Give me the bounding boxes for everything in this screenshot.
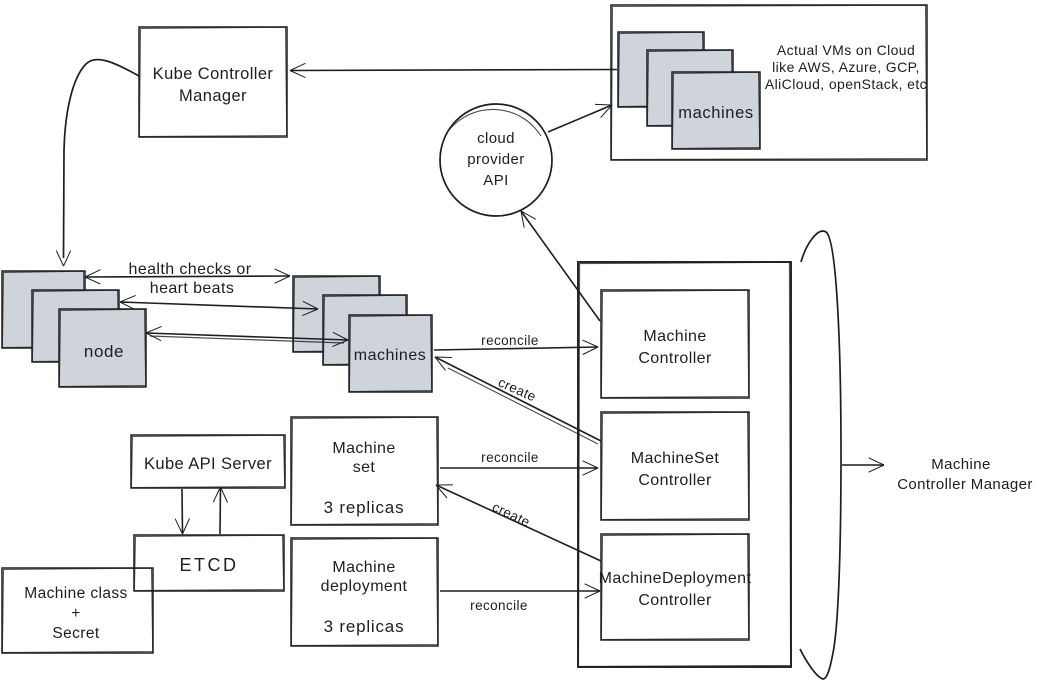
svg-text:ETCD: ETCD — [180, 555, 239, 575]
svg-text:Machine: Machine — [332, 440, 395, 457]
svg-text:deployment: deployment — [321, 578, 408, 595]
svg-text:Controller: Controller — [638, 350, 712, 367]
svg-text:3 replicas: 3 replicas — [324, 617, 405, 636]
svg-text:API: API — [483, 172, 508, 189]
svg-text:MachineSet: MachineSet — [631, 450, 720, 467]
svg-text:node: node — [84, 342, 124, 361]
svg-text:create: create — [490, 499, 533, 529]
svg-text:reconcile: reconcile — [481, 333, 539, 348]
svg-text:Manager: Manager — [179, 87, 247, 105]
svg-text:reconcile: reconcile — [470, 598, 528, 613]
svg-text:like AWS, Azure, GCP,: like AWS, Azure, GCP, — [772, 59, 920, 75]
svg-text:health checks or: health checks or — [129, 261, 252, 278]
svg-text:+: + — [71, 605, 80, 622]
svg-text:Controller: Controller — [638, 592, 712, 609]
svg-text:heart beats: heart beats — [150, 280, 234, 297]
svg-text:cloud: cloud — [477, 130, 515, 147]
svg-text:Kube Controller: Kube Controller — [153, 65, 274, 83]
svg-text:Controller Manager: Controller Manager — [897, 476, 1033, 493]
svg-text:Secret: Secret — [52, 625, 99, 642]
svg-text:set: set — [353, 459, 376, 476]
svg-text:Machine: Machine — [332, 559, 395, 576]
svg-text:provider: provider — [467, 151, 524, 168]
svg-text:create: create — [496, 375, 539, 405]
svg-text:Controller: Controller — [638, 472, 712, 489]
svg-text:Machine: Machine — [931, 456, 991, 473]
svg-text:machines: machines — [354, 347, 426, 364]
svg-text:3 replicas: 3 replicas — [324, 498, 405, 517]
svg-text:AliCloud, openStack, etc: AliCloud, openStack, etc — [765, 76, 927, 92]
svg-text:machines: machines — [678, 104, 753, 122]
svg-text:Actual VMs on Cloud: Actual VMs on Cloud — [777, 42, 915, 58]
svg-text:MachineDeployment: MachineDeployment — [599, 570, 752, 587]
svg-text:Machine: Machine — [643, 328, 706, 345]
svg-text:Kube API Server: Kube API Server — [144, 455, 272, 473]
svg-text:Machine class: Machine class — [24, 585, 127, 602]
svg-text:reconcile: reconcile — [481, 450, 539, 465]
